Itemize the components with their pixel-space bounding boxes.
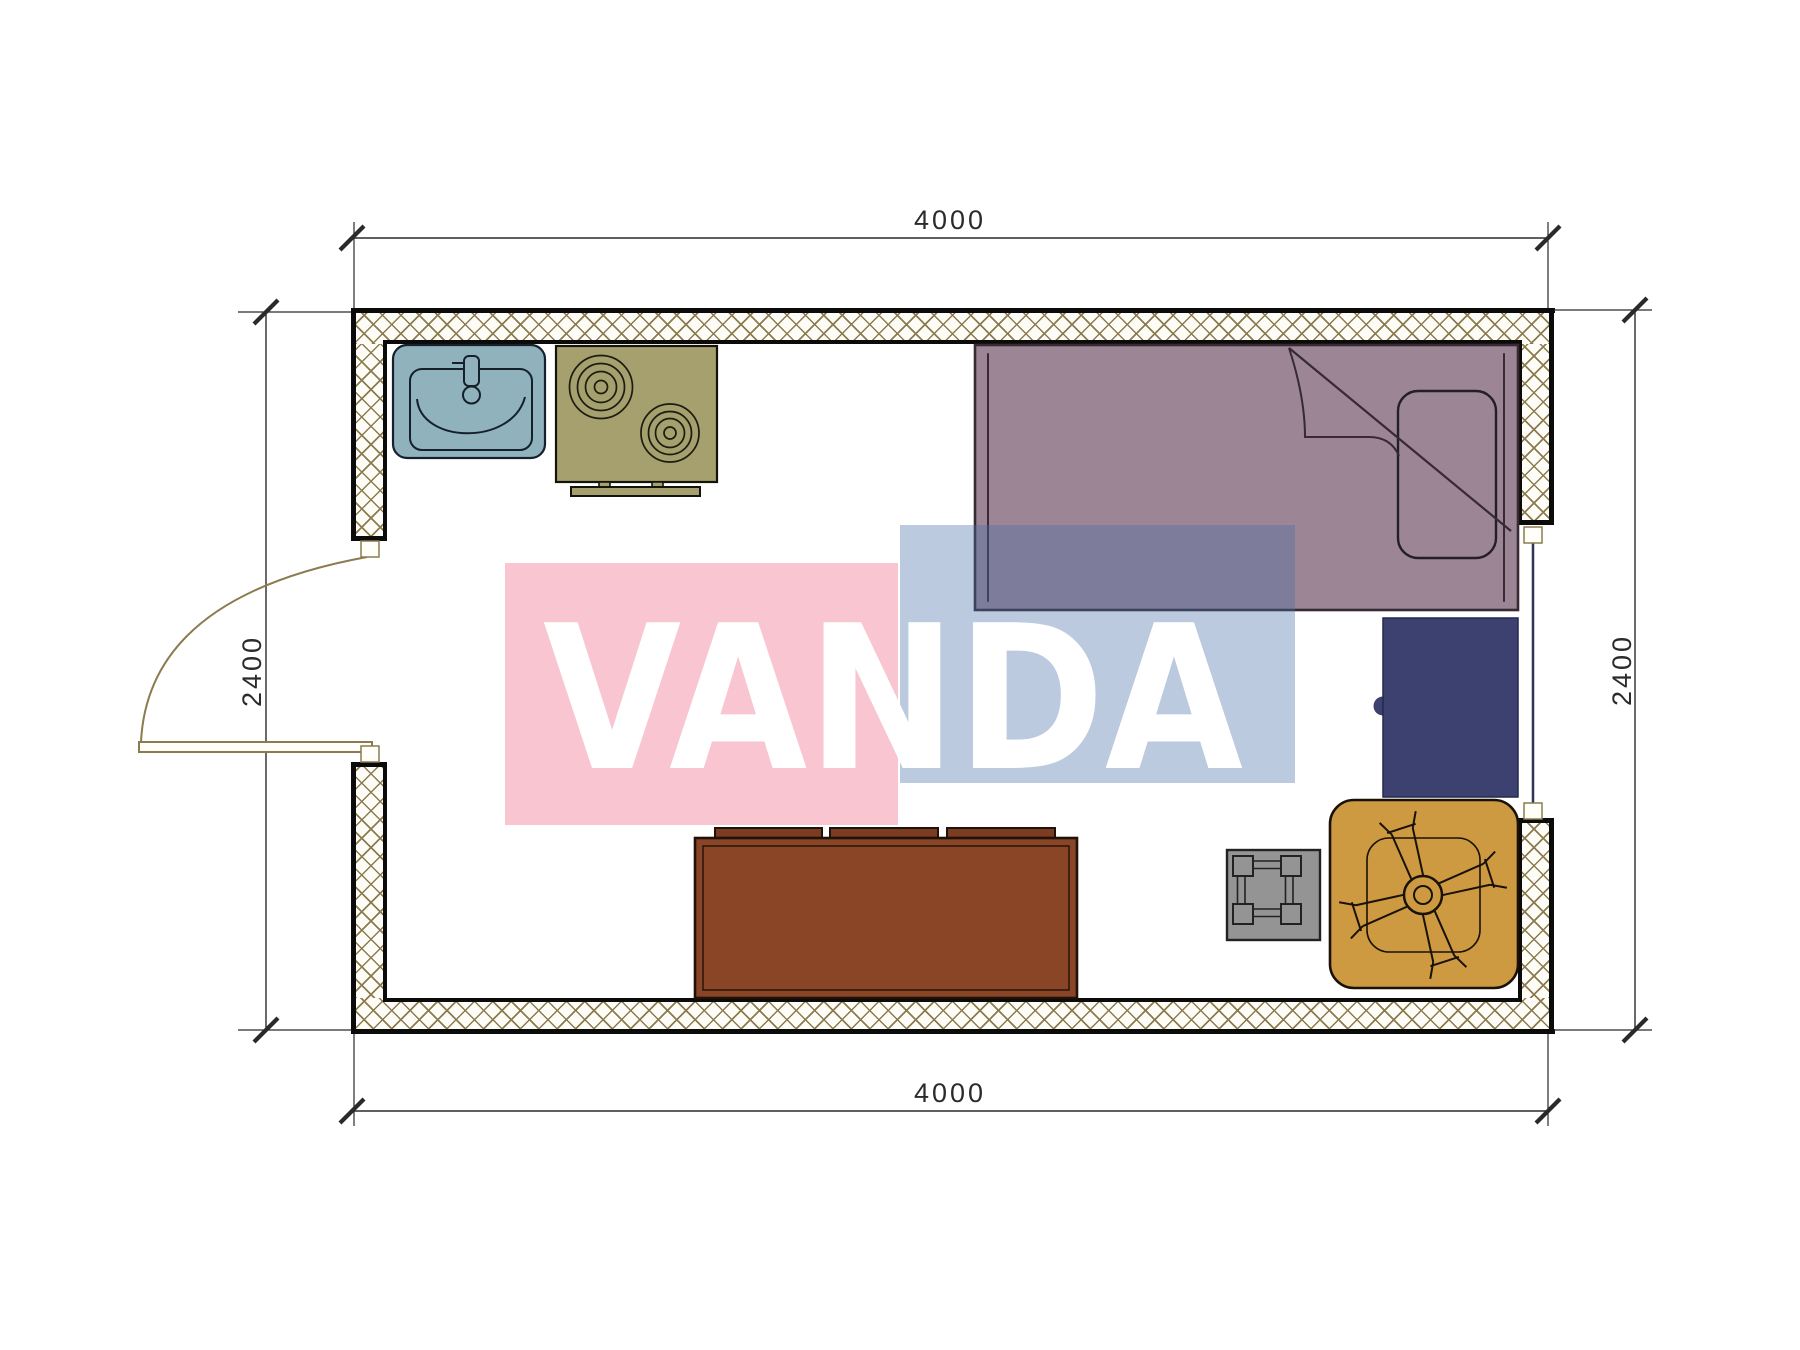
floor-plan-canvas: VANDA VANDA 4000 4000 2400 2400	[0, 0, 1800, 1350]
dim-label-bottom: 4000	[870, 1078, 1030, 1108]
dim-label-left: 2400	[237, 611, 267, 731]
watermark: VANDA VANDA	[0, 0, 1800, 1350]
watermark-text: VANDA	[543, 583, 1243, 816]
dim-label-top: 4000	[870, 205, 1030, 235]
dim-label-right: 2400	[1607, 610, 1637, 730]
